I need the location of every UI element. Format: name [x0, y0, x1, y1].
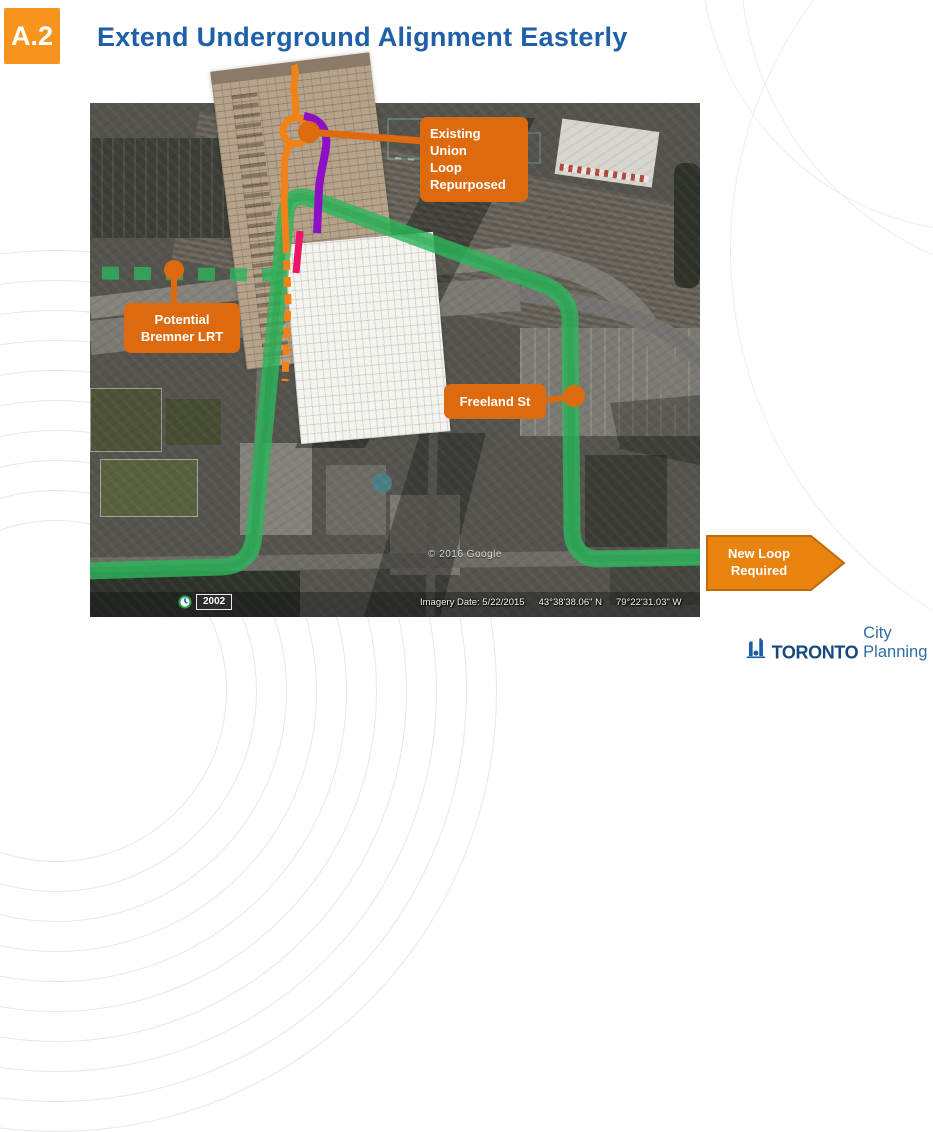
logo-division: City Planning [863, 624, 933, 663]
callout-line: Loop [430, 159, 518, 176]
clock-icon [178, 595, 192, 609]
callout-line: New Loop [728, 546, 790, 563]
toronto-city-hall-icon [746, 633, 767, 663]
callout-potential-bremner-lrt: Potential Bremner LRT [124, 303, 240, 353]
imagery-date: Imagery Date: 5/22/2015 [420, 597, 525, 608]
callout-new-loop-required: New Loop Required [705, 534, 847, 592]
callout-line: Potential [132, 311, 232, 328]
toronto-city-planning-logo: TORONTO City Planning [746, 624, 933, 663]
imagery-info: Imagery Date: 5/22/2015 43°38'38.06" N 7… [420, 597, 681, 608]
google-copyright: © 2016 Google [428, 549, 502, 560]
callout-line: Freeland St [453, 393, 537, 410]
satellite-map: Existing Union Loop Repurposed Potential… [90, 103, 700, 617]
callout-line: Repurposed [430, 176, 518, 193]
callout-line: Existing Union [430, 125, 518, 159]
longitude: 79°22'31.03" W [616, 597, 682, 608]
callout-line: Required [731, 563, 787, 580]
section-badge: A.2 [4, 8, 60, 64]
callout-freeland-st: Freeland St [444, 384, 546, 419]
latitude: 43°38'38.06" N [539, 597, 602, 608]
logo-wordmark: TORONTO [772, 641, 859, 663]
page-title: Extend Underground Alignment Easterly [97, 22, 628, 53]
historical-imagery-control: 2002 [178, 594, 232, 610]
slide: { "header": { "badge": "A.2", "title": "… [0, 0, 933, 661]
callout-existing-union-loop: Existing Union Loop Repurposed [420, 117, 528, 202]
callout-text: New Loop Required [705, 534, 813, 592]
callout-line: Bremner LRT [132, 328, 232, 345]
year-badge: 2002 [196, 594, 232, 610]
